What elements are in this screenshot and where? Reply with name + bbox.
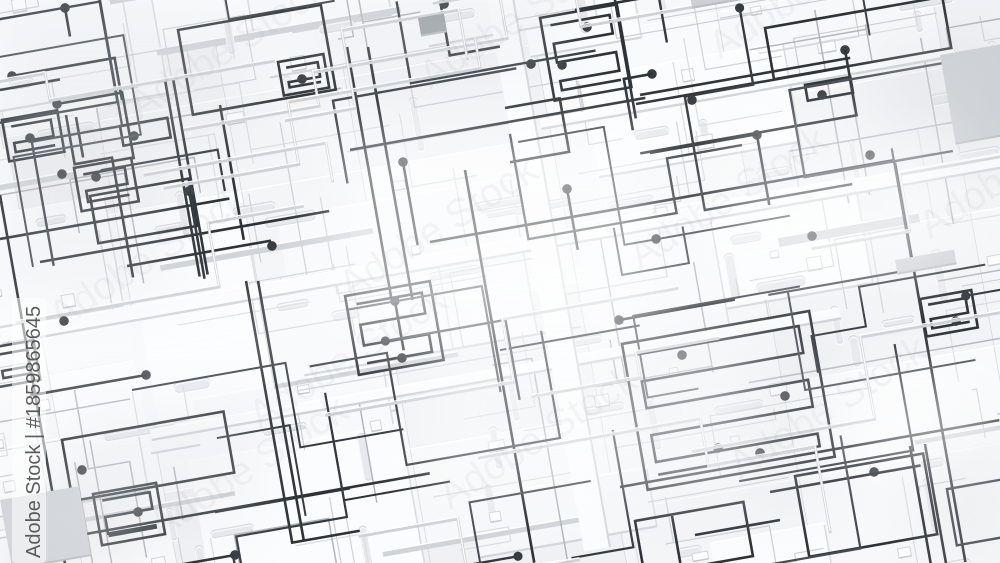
svg-text:Adobe Stock | #1859865645: Adobe Stock | #1859865645 xyxy=(23,306,45,558)
